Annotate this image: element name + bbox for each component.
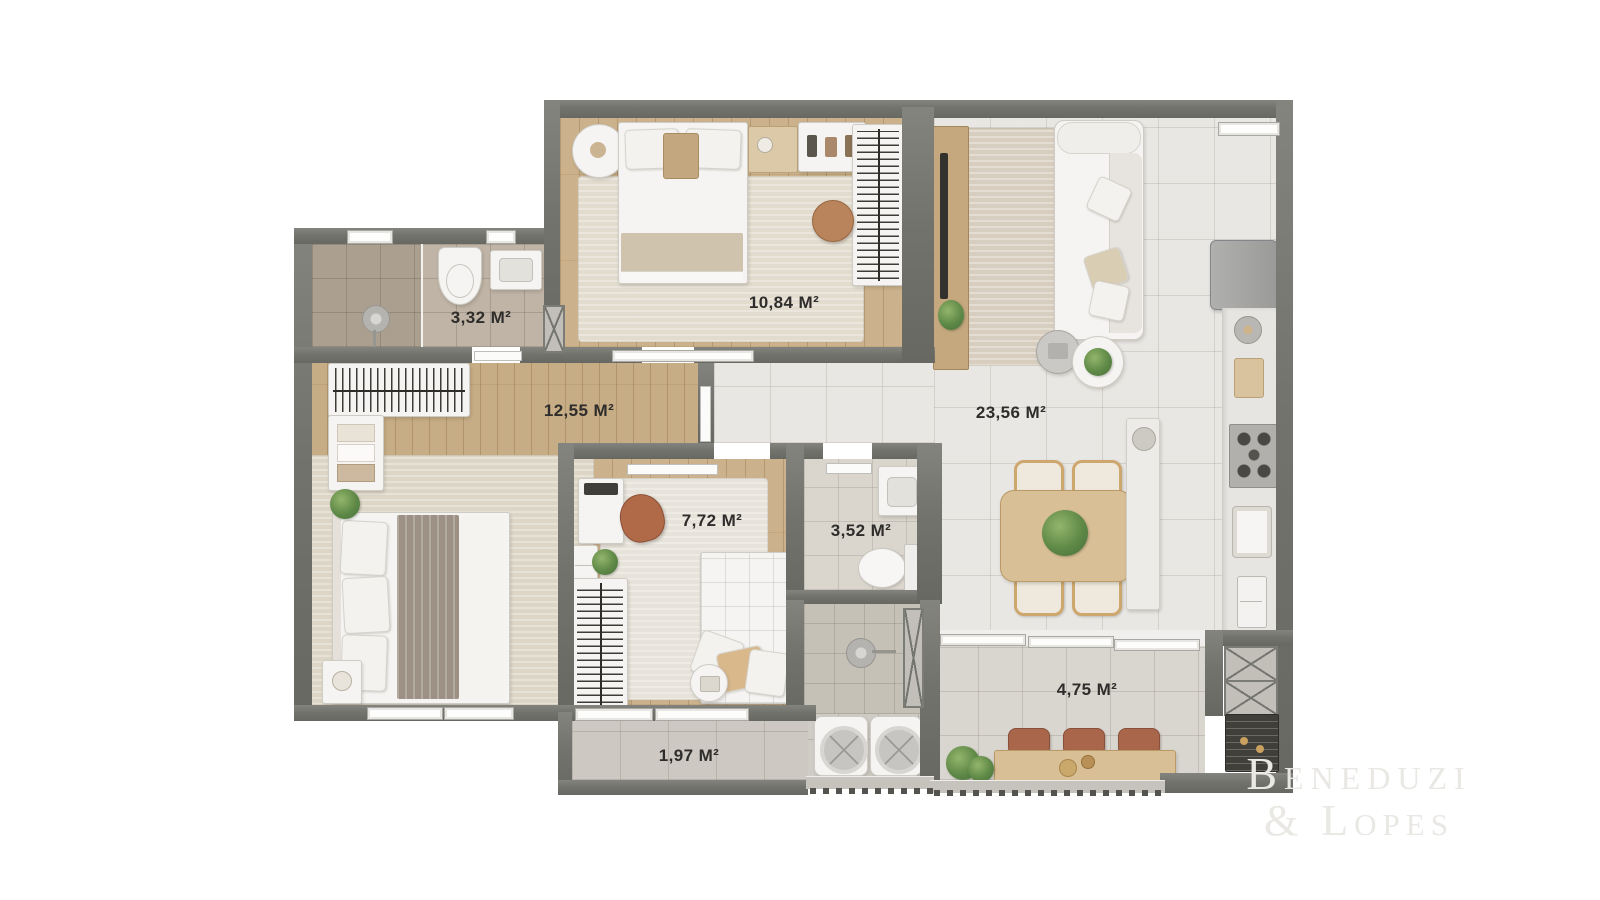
suite-bathroom-shower-floor	[312, 244, 422, 347]
bedroom-bed-duvet	[459, 515, 505, 699]
plant-tv-console	[938, 300, 964, 330]
plant-coffee-table	[1084, 348, 1112, 376]
service-balcony-window-2	[655, 708, 749, 721]
nightstand-bedroom-lamp	[332, 671, 352, 691]
sofa-armrest	[1057, 122, 1141, 154]
floor-plan-canvas: 3,32 M² 10,84 M² 12,55 M² 23,56 M² 7,72 …	[0, 0, 1600, 900]
kitchen-drawer-line	[1240, 601, 1262, 602]
balcony-sliding-door-3	[1114, 639, 1200, 651]
office-desk	[578, 478, 624, 544]
living-room-rug	[966, 128, 1056, 366]
washer-2	[870, 716, 922, 776]
area-label-living-dining: 23,56 M²	[976, 403, 1046, 423]
wall-bath-bedroom-divider-a	[294, 347, 472, 363]
cooktop	[1229, 424, 1277, 488]
wall-bathroom-east	[917, 443, 942, 604]
cutting-board	[1234, 358, 1264, 398]
master-door-leaf	[700, 386, 711, 442]
tv-screen	[940, 153, 948, 299]
wardrobe-bedroom	[328, 363, 470, 417]
kitchen-drawers	[1237, 576, 1267, 628]
sink-suite-bowl	[499, 258, 533, 282]
shelf-decor-2	[825, 137, 837, 157]
shelf-towels-2	[337, 444, 375, 462]
wall-shower-west	[786, 600, 804, 714]
toilet-bathroom	[858, 544, 920, 590]
wall-office-east	[786, 443, 804, 603]
wall-office-west	[558, 443, 574, 720]
area-label-bathroom: 3,52 M²	[831, 521, 891, 541]
wall-left	[294, 228, 312, 720]
bar-decor-2	[1081, 755, 1095, 769]
bar-decor-1	[1059, 759, 1077, 777]
master-bed-fold	[621, 271, 743, 281]
decor-plate-center	[590, 142, 606, 158]
office-monitor	[584, 483, 618, 495]
watermark-line-2: & Lopes	[1203, 797, 1515, 844]
nightstand-bedroom	[322, 660, 362, 704]
vent-shaft-suite	[543, 305, 565, 353]
area-label-bedroom: 12,55 M²	[544, 401, 614, 421]
watermark-line-1: Beneduzi	[1203, 750, 1515, 797]
suite-bath-window-1	[347, 230, 393, 244]
shower-glass-divider	[421, 244, 423, 347]
master-south-window	[612, 350, 754, 362]
wall-living-west	[902, 107, 934, 363]
laundry-railing-hatch	[810, 788, 934, 794]
wardrobe-office	[572, 578, 628, 710]
shelf-decor-1	[807, 135, 817, 157]
kitchen-sink	[1232, 506, 1272, 558]
toilet-bathroom-bowl	[858, 548, 906, 588]
balcony-sliding-door-2	[1028, 636, 1114, 648]
suite-bath-door-leaf	[474, 351, 522, 361]
bedroom-pillow-1	[340, 520, 389, 576]
sofa	[1054, 120, 1144, 340]
grill-knob-1	[1240, 737, 1248, 745]
wall-service-balcony-bottom	[558, 780, 808, 795]
master-bed-runner	[663, 133, 699, 179]
master-bed-blanket	[621, 233, 743, 273]
wall-suite-bath-top	[294, 228, 558, 244]
dining-chair-3	[1014, 576, 1064, 616]
sofa-pillow-3	[1088, 280, 1131, 323]
shower-head-suite	[362, 305, 390, 333]
plant-balcony-2	[968, 756, 994, 782]
washer-2-drum	[875, 726, 923, 774]
daybed-pillow-3	[744, 648, 790, 697]
area-label-office: 7,72 M²	[682, 511, 742, 531]
master-bed	[618, 122, 748, 284]
tv-console	[933, 126, 969, 370]
bedroom-pillow-2	[342, 576, 391, 634]
sink-suite	[490, 250, 542, 290]
shelf-towels-3	[337, 464, 375, 482]
office-side-table	[690, 664, 728, 702]
entry-door	[1218, 122, 1280, 136]
kitchen-island	[1126, 418, 1160, 610]
washer-1-drum	[820, 726, 868, 774]
area-label-bathroom-suite: 3,32 M²	[451, 308, 511, 328]
area-label-service-balcony: 1,97 M²	[659, 746, 719, 766]
suite-bath-window-2	[486, 230, 516, 244]
side-table-master	[812, 200, 854, 242]
area-label-gourmet-balcony: 4,75 M²	[1057, 680, 1117, 700]
shower-arm-bathroom	[872, 650, 896, 653]
bedroom-bed-blanket	[397, 515, 459, 699]
watermark: Beneduzi & Lopes	[1203, 750, 1515, 844]
plant-office	[592, 549, 618, 575]
bathroom-door-leaf	[826, 463, 872, 474]
wardrobe-office-rod	[600, 583, 602, 705]
fridge	[1210, 240, 1278, 310]
nightstand-master	[748, 126, 798, 173]
wardrobe-master	[852, 124, 904, 286]
shelf-towels-1	[337, 424, 375, 442]
balcony-railing-hatch	[934, 790, 1164, 796]
kitchen-faucet	[1234, 316, 1262, 344]
island-basin	[1132, 427, 1156, 451]
office-door-leaf	[627, 464, 718, 475]
toilet-suite	[438, 247, 482, 305]
wardrobe-bedroom-rod	[333, 390, 465, 392]
coffee-table-tray	[1048, 343, 1068, 359]
kitchen-counter	[1222, 308, 1278, 640]
wall-right	[1276, 100, 1293, 793]
sink-bathroom-bowl	[887, 477, 917, 507]
balcony-sliding-door-1	[940, 634, 1026, 646]
office-side-table-tray	[700, 676, 720, 692]
area-label-master-bedroom: 10,84 M²	[749, 293, 819, 313]
plant-dining-table	[1042, 510, 1088, 556]
balcony-bar-counter	[994, 750, 1176, 784]
office-box-line	[575, 565, 593, 566]
bedroom-window-2	[444, 707, 514, 720]
dining-chair-4	[1072, 576, 1122, 616]
bedroom-shelf	[328, 415, 384, 491]
shower-head-bathroom	[846, 638, 876, 668]
vent-shaft-balcony-2	[1224, 680, 1278, 716]
wardrobe-master-rod	[878, 129, 880, 281]
wall-balcony-east	[1205, 630, 1223, 716]
vent-shaft-bathroom	[903, 608, 924, 708]
toilet-suite-seat	[446, 264, 474, 298]
vent-shaft-balcony-1	[1224, 646, 1278, 682]
nightstand-lamp	[757, 137, 773, 153]
washer-1	[814, 716, 868, 776]
plant-bedroom	[330, 489, 360, 519]
corridor-floor	[714, 363, 934, 443]
bedroom-window-1	[367, 707, 443, 720]
wall-office-top-a	[558, 443, 714, 459]
service-balcony-window-1	[575, 708, 653, 721]
